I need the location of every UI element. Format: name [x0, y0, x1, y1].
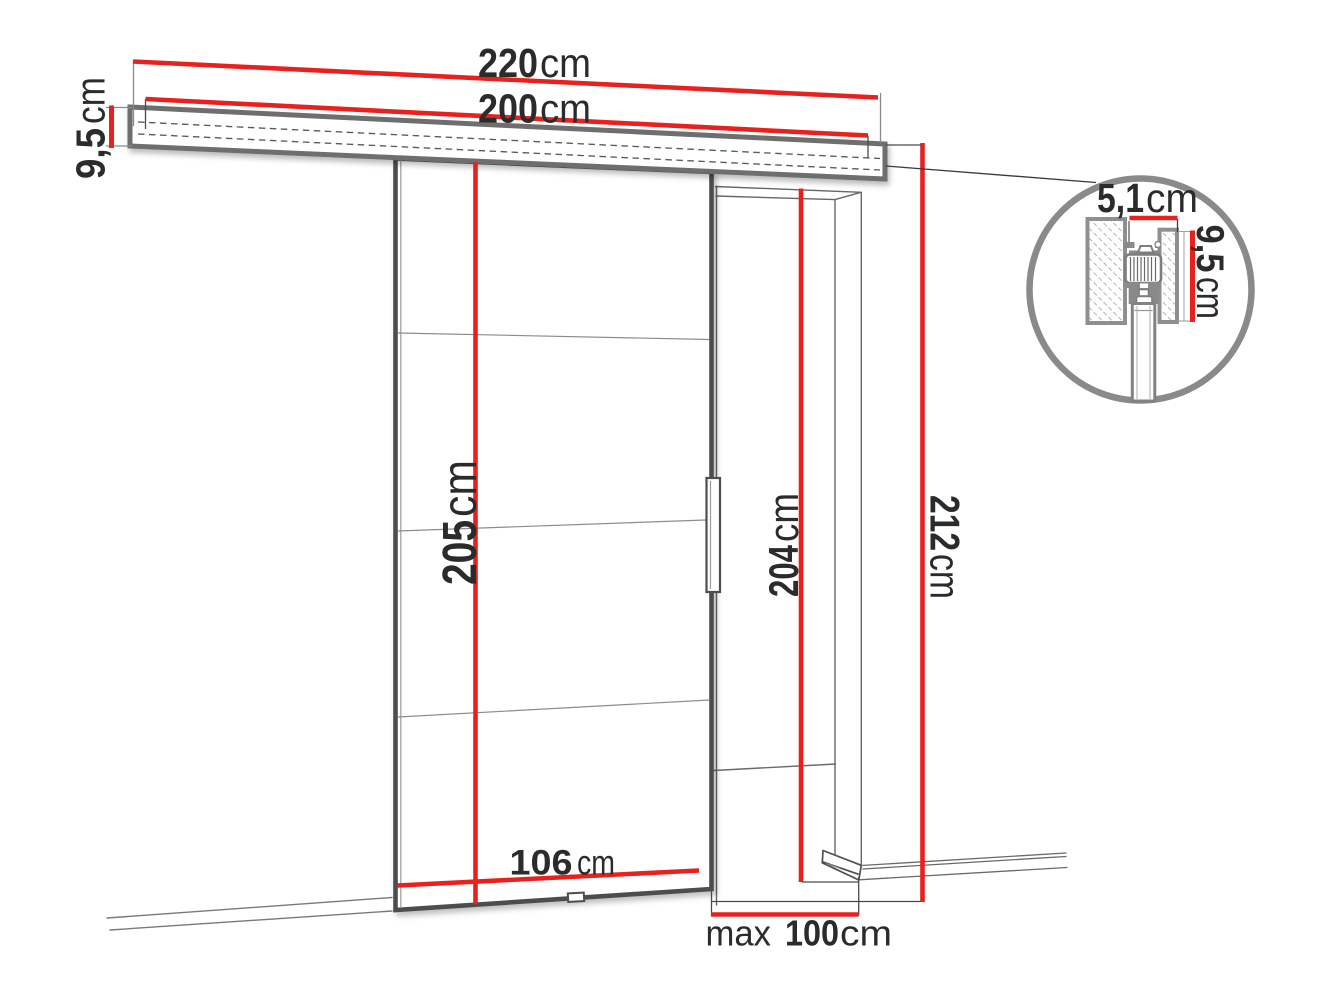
svg-text:200: 200	[478, 86, 538, 132]
svg-text:106: 106	[510, 844, 573, 883]
svg-text:212: 212	[922, 495, 969, 551]
svg-text:cm: cm	[434, 460, 487, 517]
svg-text:100: 100	[785, 913, 839, 954]
svg-text:9,5: 9,5	[1188, 225, 1231, 273]
svg-text:220: 220	[478, 40, 538, 86]
svg-text:cm: cm	[540, 86, 591, 132]
svg-text:max: max	[706, 913, 772, 954]
svg-text:cm: cm	[577, 844, 615, 883]
svg-text:9,5: 9,5	[68, 128, 114, 179]
svg-text:cm: cm	[760, 493, 807, 542]
svg-text:204: 204	[760, 545, 807, 597]
svg-text:cm: cm	[68, 77, 114, 124]
svg-text:cm: cm	[840, 913, 892, 954]
svg-text:cm: cm	[1146, 175, 1198, 221]
svg-text:5,1: 5,1	[1097, 175, 1144, 221]
svg-text:205: 205	[434, 520, 487, 585]
svg-text:cm: cm	[1188, 277, 1231, 319]
svg-text:cm: cm	[540, 40, 591, 86]
svg-text:cm: cm	[922, 554, 969, 599]
